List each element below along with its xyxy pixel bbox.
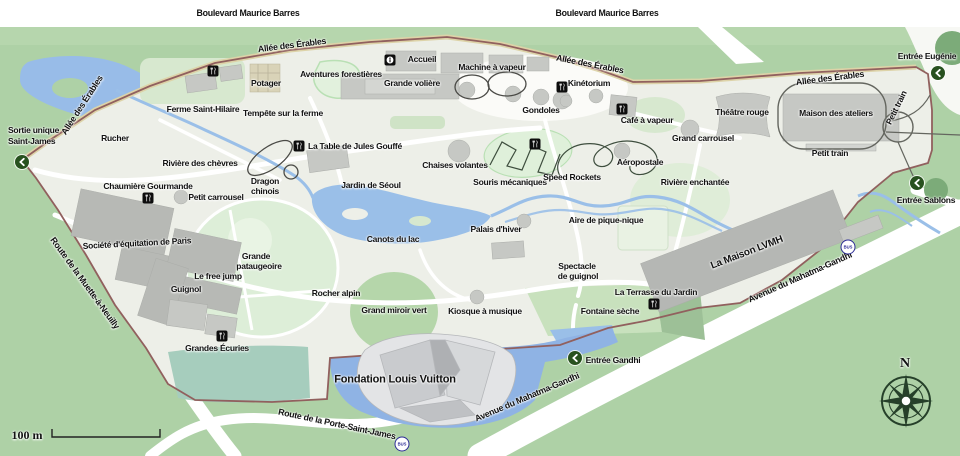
- poi-label-machine-vapeur: Machine à vapeur: [458, 63, 525, 73]
- poi-label-fontaine: Fontaine sèche: [581, 307, 639, 317]
- restaurant-icon: [617, 104, 628, 115]
- restaurant-icon: [649, 299, 660, 310]
- poi-label-spectacle-line2: de guignol: [558, 272, 598, 282]
- poi-label-terrasse: La Terrasse du Jardin: [615, 288, 697, 298]
- poi-label-petit-carrousel: Petit carrousel: [188, 193, 243, 203]
- poi-label-free-jump: Le free jump: [194, 272, 242, 282]
- poi-label-kiosque: Kiosque à musique: [448, 307, 522, 317]
- poi-label-gondoles: Gondoles: [522, 106, 559, 116]
- poi-label-accueil: Accueil: [408, 55, 437, 65]
- teal-basin: [168, 346, 310, 403]
- entrance-arrow-icon: [15, 155, 29, 169]
- entrance-arrow-icon: [931, 66, 945, 80]
- poi-label-aventures: Aventures forestières: [300, 70, 382, 80]
- poi-label-riviere-enchantee: Rivière enchantée: [661, 178, 730, 188]
- entrance-label-eugenie: Entrée Eugénie: [898, 52, 956, 62]
- poi-label-canots: Canots du lac: [367, 235, 419, 245]
- restaurant-icon: [143, 193, 154, 204]
- road-label-boulevard-1: Boulevard Maurice Barres: [196, 8, 299, 18]
- poi-label-chaises: Chaises volantes: [422, 161, 487, 171]
- poi-label-guignol: Guignol: [171, 285, 201, 295]
- poi-label-grande-voliere: Grande volière: [384, 79, 440, 89]
- poi-label-potager: Potager: [251, 79, 281, 89]
- restaurant-icon: [294, 141, 305, 152]
- poi-label-tempete: Tempête sur la ferme: [243, 109, 323, 119]
- entrance-arrow-icon: [910, 176, 924, 190]
- poi-label-miroir-vert: Grand miroir vert: [361, 306, 426, 316]
- entrance-label-gandhi: Entrée Gandhi: [586, 356, 641, 366]
- boulevard-strip: [0, 0, 960, 27]
- bus-stop-icon: BUS: [395, 437, 410, 452]
- bus-stop-icon: BUS: [841, 240, 856, 255]
- poi-label-petit-train: Petit train: [812, 149, 848, 159]
- restaurant-icon: [208, 66, 219, 77]
- poi-label-maison-ateliers: Maison des ateliers: [799, 109, 873, 119]
- poi-label-pataugeoire-line2: pataugeoire: [236, 262, 281, 272]
- poi-label-chaumiere: Chaumière Gourmande: [103, 182, 192, 192]
- compass-rose-icon: [878, 373, 934, 429]
- information-icon: [385, 55, 396, 66]
- entrance-arrow-icon: [568, 351, 582, 365]
- poi-label-speed-rockets: Speed Rockets: [543, 173, 601, 183]
- poi-label-theatre-rouge: Théâtre rouge: [715, 108, 768, 118]
- park-map: Boulevard Maurice Barres Boulevard Mauri…: [0, 0, 960, 456]
- poi-label-ferme: Ferme Saint-Hilaire: [167, 105, 240, 115]
- poi-label-grandes-ecuries: Grandes Écuries: [185, 344, 249, 354]
- grandes-ecuries-building: [166, 299, 207, 330]
- poi-label-palais-hiver: Palais d'hiver: [471, 225, 522, 235]
- poi-label-aeropostale: Aéropostale: [617, 158, 663, 168]
- poi-label-fondation: Fondation Louis Vuitton: [334, 374, 455, 387]
- poi-label-rocher-alpin: Rocher alpin: [312, 289, 360, 299]
- restaurant-icon: [557, 82, 568, 93]
- poi-label-pique-nique: Aire de pique-nique: [569, 216, 644, 226]
- poi-label-dragon-line2: chinois: [251, 187, 279, 197]
- entrance-label-sortie-line1: Sortie unique: [8, 126, 59, 136]
- poi-label-souris: Souris mécaniques: [473, 178, 547, 188]
- poi-label-cafe-vapeur: Café à vapeur: [621, 116, 674, 126]
- poi-label-grand-carrousel: Grand carrousel: [672, 134, 734, 144]
- compass-north-label: N: [900, 356, 910, 372]
- entrance-label-sablons: Entrée Sablons: [897, 196, 955, 206]
- poi-label-rucher: Rucher: [101, 134, 129, 144]
- poi-label-kinetorium: Kinétorium: [568, 79, 610, 89]
- poi-label-riviere-chevres: Rivière des chèvres: [162, 159, 237, 169]
- scale-label: 100 m: [12, 429, 43, 443]
- road-label-boulevard-2: Boulevard Maurice Barres: [555, 8, 658, 18]
- restaurant-icon: [530, 139, 541, 150]
- entrance-label-sortie-line2: Saint-James: [8, 137, 55, 147]
- poi-label-jardin-seoul: Jardin de Séoul: [341, 181, 401, 191]
- restaurant-icon: [217, 331, 228, 342]
- poi-label-table-jules: La Table de Jules Gouffé: [308, 142, 402, 152]
